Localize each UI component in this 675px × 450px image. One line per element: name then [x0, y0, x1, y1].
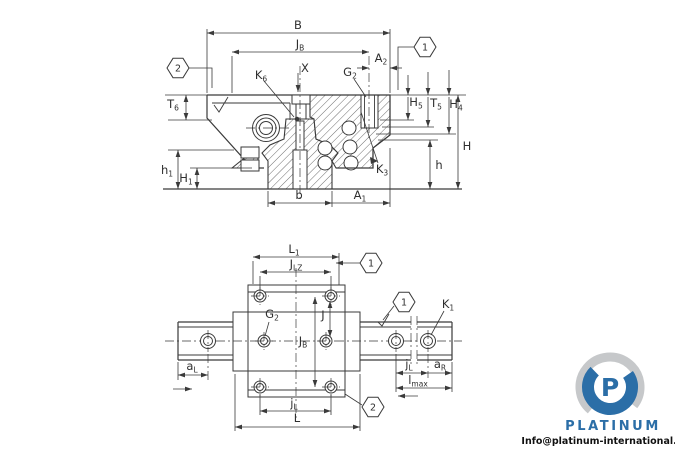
balloon-2-plan: 2 — [362, 397, 384, 416]
label-A1: A1 — [354, 188, 367, 204]
seal-plate-slot — [241, 160, 259, 171]
balloon1-leader — [398, 47, 414, 90]
label-h: h — [435, 158, 442, 172]
label-jL: jL — [289, 396, 298, 412]
logo-wordmark: PLATINUM — [565, 419, 661, 434]
balloon-1: 1 — [414, 37, 436, 56]
balloon2-leader — [189, 68, 212, 88]
label-L: L — [294, 411, 301, 425]
carriage-wing-left — [233, 312, 248, 371]
label-K3: K3 — [376, 162, 389, 178]
balloon-2-plan-number: 2 — [370, 403, 376, 414]
g2-leader — [354, 79, 366, 97]
email-text: Info@platinum-international.store — [521, 436, 675, 447]
section-view: 1 2 B JB A2 K6 X G2 T6 H5 T5 H4 H h h1 H… — [161, 18, 471, 207]
label-A2: A2 — [375, 51, 388, 67]
label-H5: H5 — [409, 95, 423, 111]
balloon-2-number: 2 — [175, 64, 181, 75]
balloon-1-top-number: 1 — [368, 259, 374, 270]
ball — [318, 141, 332, 155]
plan-view: 1 1 2 L1 JLZ K1 G2 J JB aL jL aR lmax jL… — [165, 242, 462, 431]
ball — [318, 156, 332, 170]
balloon-1-rail-number: 1 — [401, 298, 407, 309]
label-L1: L1 — [288, 242, 299, 258]
linear-guide-drawing: 1 2 B JB A2 K6 X G2 T6 H5 T5 H4 H h h1 H… — [0, 0, 675, 450]
ball — [342, 121, 356, 135]
label-H: H — [463, 139, 472, 153]
platinum-logo: P PLATINUM Info@platinum-international.s… — [521, 345, 675, 447]
label-B: B — [294, 18, 302, 32]
label-G2: G2 — [343, 65, 357, 81]
balloon-2: 2 — [167, 58, 189, 77]
label-JB: JB — [295, 37, 305, 53]
label-aR: aR — [434, 357, 446, 373]
label-H4: H4 — [449, 97, 463, 113]
logo-p-letter: P — [601, 373, 619, 402]
lube-port-shaft — [296, 104, 306, 119]
seal-plate-slot — [241, 147, 259, 158]
lube-port-top — [292, 95, 310, 104]
balloon-1-number: 1 — [422, 43, 428, 54]
label-b: b — [295, 188, 302, 202]
g2-thread-hole — [361, 95, 378, 128]
label-H1: H1 — [179, 171, 193, 187]
carriage-wing-right — [345, 312, 360, 371]
label-J: J — [320, 308, 324, 322]
label-T5: T5 — [429, 96, 442, 112]
label-T6: T6 — [166, 97, 179, 113]
label-K1: K1 — [442, 297, 455, 313]
label-lmax: lmax — [408, 373, 428, 389]
k6-leader — [264, 81, 294, 117]
label-h1: h1 — [161, 163, 173, 179]
balloon2-leader — [345, 394, 362, 405]
label-aL: aL — [186, 359, 198, 375]
label-K6: K6 — [255, 68, 268, 84]
balloon-1-rail: 1 — [393, 292, 415, 311]
balloon1-rail-leader — [383, 306, 394, 320]
seal-lip-mark — [295, 117, 300, 122]
balloon-1-top: 1 — [360, 253, 382, 272]
label-JLZ: JLZ — [289, 257, 303, 273]
technical-drawing-page: 1 2 B JB A2 K6 X G2 T6 H5 T5 H4 H h h1 H… — [0, 0, 675, 450]
surface-finish-icon — [214, 97, 228, 112]
label-X: X — [301, 61, 309, 75]
ball — [343, 140, 357, 154]
k1-leader — [431, 311, 444, 335]
label-jL-rail: jL — [404, 357, 413, 373]
